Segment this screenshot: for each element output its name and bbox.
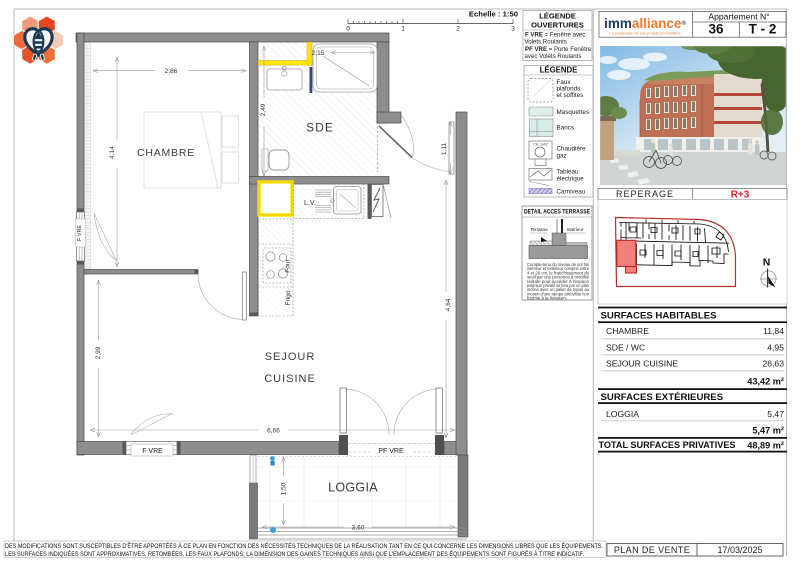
svg-text:6,66: 6,66 xyxy=(267,428,280,435)
svg-text:2,49: 2,49 xyxy=(260,103,267,116)
svg-text:PF VRE: PF VRE xyxy=(378,448,404,455)
svg-text:LÉGENDE: LÉGENDE xyxy=(540,66,578,75)
svg-text:Carniveau: Carniveau xyxy=(557,189,586,196)
svg-text:T - 2: T - 2 xyxy=(749,22,777,37)
svg-text:Terrasse: Terrasse xyxy=(530,227,548,232)
svg-text:DETAIL ACCES TERRASSE: DETAIL ACCES TERRASSE xyxy=(524,209,590,216)
svg-text:CHAMBRE: CHAMBRE xyxy=(137,147,195,159)
svg-text:2,99: 2,99 xyxy=(95,346,102,359)
svg-text:36: 36 xyxy=(708,22,724,37)
svg-text:1,50: 1,50 xyxy=(281,482,288,495)
svg-text:CH. GAZ: CH. GAZ xyxy=(533,143,548,147)
svg-text:4,14: 4,14 xyxy=(109,146,116,159)
svg-text:SURFACES HABITABLES: SURFACES HABITABLES xyxy=(601,311,718,322)
svg-text:1: 1 xyxy=(401,26,405,33)
svg-text:LÉGENDE: LÉGENDE xyxy=(539,12,576,21)
svg-text:Bancs: Bancs xyxy=(557,125,575,132)
svg-text:F VRE: F VRE xyxy=(142,448,163,455)
svg-text:3,60: 3,60 xyxy=(352,525,365,532)
svg-text:PLAN DE VENTE: PLAN DE VENTE xyxy=(614,545,690,555)
svg-text:électrique: électrique xyxy=(557,176,585,183)
svg-text:1,11: 1,11 xyxy=(441,143,448,156)
svg-text:Echelle : 1:50: Echelle : 1:50 xyxy=(469,10,518,19)
svg-text:CHAMBRE: CHAMBRE xyxy=(606,326,649,336)
svg-text:fournie à la livraison.: fournie à la livraison. xyxy=(527,296,567,301)
svg-text:N: N xyxy=(763,257,771,269)
svg-text:2: 2 xyxy=(456,26,460,33)
svg-text:Masquettes: Masquettes xyxy=(557,109,590,116)
svg-text:4,95: 4,95 xyxy=(767,343,784,353)
svg-text:CUISINE: CUISINE xyxy=(264,373,316,385)
svg-text:LES SURFACES INDIQUÉES SONT AP: LES SURFACES INDIQUÉES SONT APPROXIMATIV… xyxy=(5,551,584,558)
svg-text:TOTAL SURFACES PRIVATIVES: TOTAL SURFACES PRIVATIVES xyxy=(599,439,736,450)
svg-text:immalliance®: immalliance® xyxy=(604,16,686,31)
svg-text:5,47 m²: 5,47 m² xyxy=(752,426,784,436)
svg-text:REPERAGE: REPERAGE xyxy=(616,189,674,199)
svg-text:Appartement N°: Appartement N° xyxy=(708,12,769,22)
svg-text:Chaudière: Chaudière xyxy=(557,146,587,153)
svg-text:DES MODIFICATIONS SONT SUSCEPT: DES MODIFICATIONS SONT SUSCEPTIBLES D'ÊT… xyxy=(5,542,603,550)
svg-text:0: 0 xyxy=(346,26,350,33)
svg-text:SDE: SDE xyxy=(306,121,334,135)
svg-text:5,47: 5,47 xyxy=(767,409,784,419)
svg-text:3: 3 xyxy=(511,26,515,33)
svg-text:OUVERTURES: OUVERTURES xyxy=(531,21,584,30)
svg-text:LOGGIA: LOGGIA xyxy=(328,481,378,495)
svg-text:4,64: 4,64 xyxy=(445,298,452,311)
svg-text:Four: Four xyxy=(285,258,292,272)
svg-text:gaz: gaz xyxy=(557,153,567,160)
svg-text:11,84: 11,84 xyxy=(763,326,784,336)
svg-text:F VRE: F VRE xyxy=(77,225,83,242)
svg-text:Le partenaire de vos projets i: Le partenaire de vos projets immobiliers xyxy=(610,31,681,36)
svg-text:et soffites: et soffites xyxy=(557,92,584,99)
svg-text:avec Volets Roulants: avec Volets Roulants xyxy=(525,53,582,60)
svg-text:L.V.: L.V. xyxy=(304,200,316,207)
svg-text:Volets Roulants: Volets Roulants xyxy=(525,39,567,46)
svg-text:26,63: 26,63 xyxy=(762,359,784,369)
svg-text:SEJOUR CUISINE: SEJOUR CUISINE xyxy=(606,359,678,369)
svg-text:PF VRE = Porte Fenêtre: PF VRE = Porte Fenêtre xyxy=(525,46,592,53)
svg-text:SEJOUR: SEJOUR xyxy=(265,351,316,363)
svg-text:R+3: R+3 xyxy=(731,190,750,201)
svg-text:2,86: 2,86 xyxy=(165,68,178,75)
svg-text:LOGGIA: LOGGIA xyxy=(606,409,639,419)
svg-text:SURFACES EXTÉRIEURES: SURFACES EXTÉRIEURES xyxy=(601,391,724,403)
svg-text:17/03/2025: 17/03/2025 xyxy=(717,545,762,555)
svg-text:SDE / WC: SDE / WC xyxy=(606,343,645,353)
svg-text:Intérieur: Intérieur xyxy=(567,227,584,232)
svg-text:Frigo: Frigo xyxy=(285,290,292,305)
svg-text:F VRE = Fenêtre avec: F VRE = Fenêtre avec xyxy=(525,32,585,39)
svg-text:48,89 m²: 48,89 m² xyxy=(747,441,784,451)
svg-text:43,42 m²: 43,42 m² xyxy=(747,377,784,387)
svg-text:Tableau: Tableau xyxy=(557,169,580,176)
svg-text:2,15: 2,15 xyxy=(312,50,325,57)
